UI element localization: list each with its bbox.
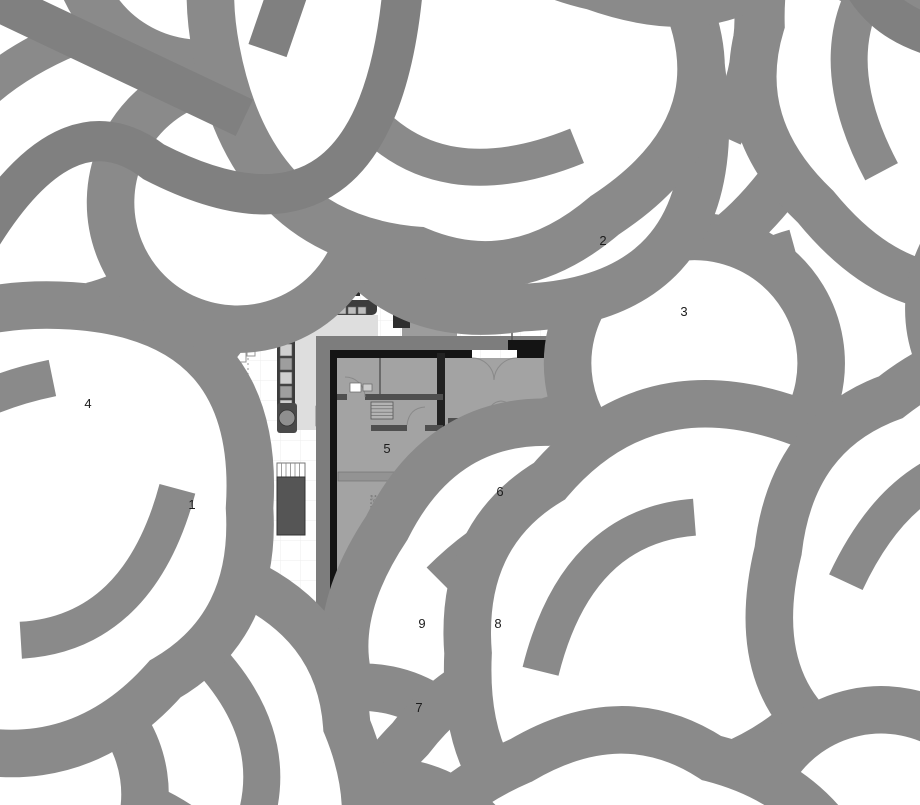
floor-plan-canvas: 123456789: [0, 0, 920, 805]
kitchen-unit: [280, 358, 292, 370]
inner-wall: [365, 394, 443, 400]
fixture: [350, 383, 361, 392]
room-number-label: 6: [496, 484, 503, 499]
kitchen-unit: [280, 386, 292, 398]
inner-wall: [337, 394, 347, 400]
bar-equipment: [358, 307, 366, 314]
room-number-label: 9: [418, 616, 425, 631]
room-number-label: 7: [415, 700, 422, 715]
inner-wall: [371, 425, 407, 431]
core-wall-top: [330, 350, 472, 358]
kitchen-sink: [279, 410, 295, 426]
room-number-label: 5: [383, 441, 390, 456]
fixture: [363, 384, 372, 391]
kitchen-unit: [280, 372, 292, 384]
room-number-label: 8: [494, 616, 501, 631]
stair-ladder: [371, 402, 393, 419]
inner-wall-thin: [379, 358, 381, 394]
room-number-label: 2: [599, 233, 606, 248]
room-number-label: 4: [84, 396, 91, 411]
bar-equipment: [348, 307, 356, 314]
serving-counter: [277, 477, 305, 535]
floor-plan-page: 123456789: [0, 0, 920, 805]
room-number-label: 3: [680, 304, 687, 319]
room-number-label: 1: [188, 497, 195, 512]
